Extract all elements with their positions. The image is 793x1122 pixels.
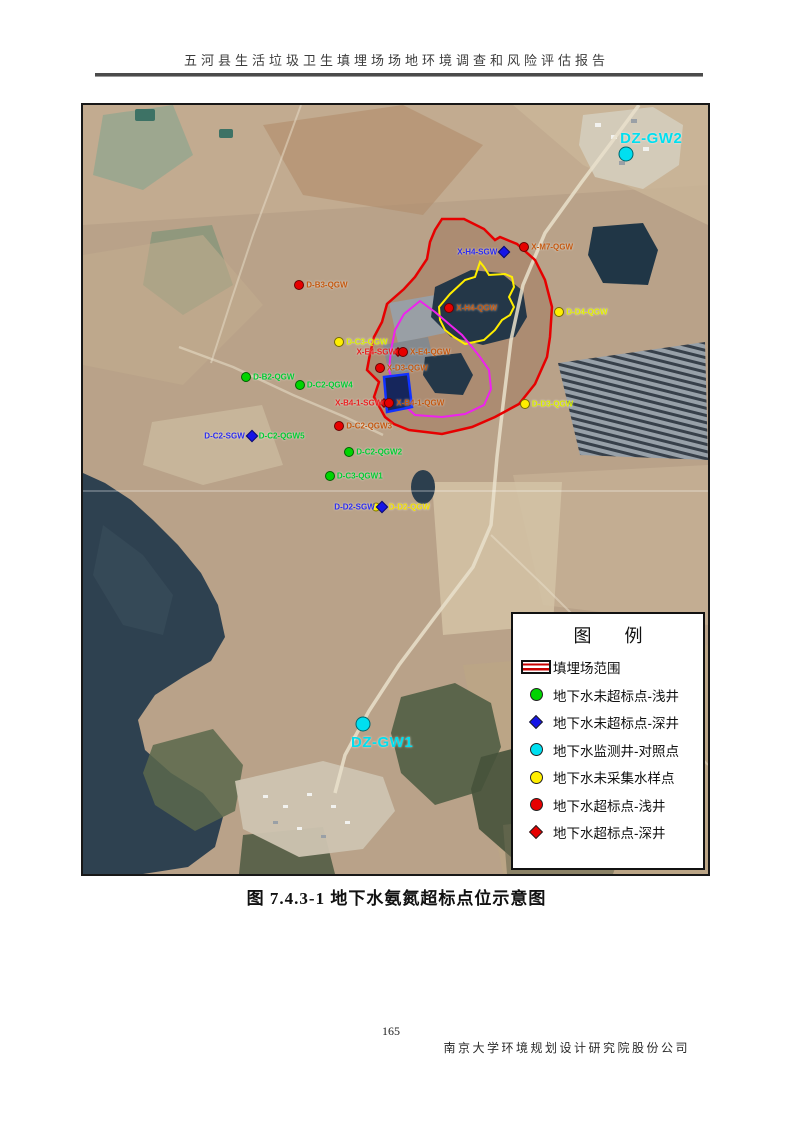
legend-label: 地下水超标点-浅井 [553, 795, 666, 815]
legend-symbol-circle-icon [519, 688, 553, 701]
circle-marker-icon [325, 471, 335, 481]
legend-symbol-landfill-icon [519, 660, 553, 674]
point-label: D-D3-QGW [532, 400, 573, 409]
legend-row: 地下水超标点-浅井 [513, 792, 703, 818]
circle-marker-icon [520, 399, 530, 409]
point-label: X-H4-QGW [456, 304, 497, 313]
point-label: X-E4-SGW [356, 347, 396, 356]
circle-marker-icon [519, 242, 529, 252]
point-label: X-M7-QGW [531, 243, 573, 252]
legend-label: 地下水超标点-深井 [553, 822, 666, 842]
legend-row: 填埋场范围 [513, 654, 703, 680]
circle-marker-icon [294, 280, 304, 290]
point-label: D-C3-QGW [346, 337, 387, 346]
page-number: 165 [382, 1024, 400, 1039]
footer-company: 南京大学环境规划设计研究院股份公司 [443, 1039, 690, 1056]
circle-marker-icon [295, 380, 305, 390]
point-label: X-E4-QGW [410, 347, 450, 356]
circle-marker-icon [334, 337, 344, 347]
legend-label: 地下水监测井-对照点 [553, 740, 679, 760]
legend-label: 地下水未超标点-浅井 [553, 685, 679, 705]
point-label: D-C2-QGW4 [307, 380, 353, 389]
legend-symbol-circle-icon [519, 798, 553, 811]
point-label: D-C2-QGW5 [259, 431, 305, 440]
diamond-marker-icon [498, 246, 511, 259]
point-label: D-D2-SGW [334, 503, 374, 512]
circle-marker-icon [334, 421, 344, 431]
circle-marker-icon [384, 398, 394, 408]
circle-marker-icon [344, 447, 354, 457]
circle-marker-icon [554, 307, 564, 317]
point-label: D-D2-QGW [389, 503, 430, 512]
point-label: DZ-GW1 [351, 734, 413, 751]
point-label: D-C2-SGW [204, 431, 244, 440]
point-label: X-D3-QGW [387, 363, 428, 372]
point-label: X-H4-SGW [457, 247, 497, 256]
circle-marker-icon [375, 363, 385, 373]
legend-row: 地下水监测井-对照点 [513, 737, 703, 763]
circle-marker-icon [619, 147, 634, 162]
figure-caption: 图 7.4.3-1 地下水氨氮超标点位示意图 [0, 884, 793, 909]
point-label: D-C2-QGW3 [346, 421, 392, 430]
point-label: D-B3-QGW [306, 280, 347, 289]
legend-row: 地下水未超标点-浅井 [513, 682, 703, 708]
legend-label: 填埋场范围 [553, 657, 621, 677]
legend-row: 地下水超标点-深井 [513, 819, 703, 845]
legend-symbol-diamond-icon [519, 717, 553, 727]
point-label: X-B4-1-QGW [396, 399, 444, 408]
point-label: D-B2-QGW [253, 373, 294, 382]
legend-row: 地下水未采集水样点 [513, 764, 703, 790]
legend-row: 地下水未超标点-深井 [513, 709, 703, 735]
circle-marker-icon [356, 717, 371, 732]
circle-marker-icon [444, 303, 454, 313]
legend-symbol-circle-icon [519, 743, 553, 756]
map-legend: 图 例 填埋场范围地下水未超标点-浅井地下水未超标点-深井地下水监测井-对照点地… [511, 612, 705, 870]
satellite-map-figure: DZ-GW2X-H4-SGWX-M7-QGWD-B3-QGWX-H4-QGWD-… [81, 103, 710, 876]
header-rule [95, 73, 703, 77]
report-page: 五河县生活垃圾卫生填埋场场地环境调查和风险评估报告 [0, 0, 793, 1122]
point-label: DZ-GW2 [620, 130, 682, 147]
point-label: D-D4-QGW [566, 307, 607, 316]
diamond-marker-icon [245, 429, 258, 442]
circle-marker-icon [241, 372, 251, 382]
legend-label: 地下水未采集水样点 [553, 767, 675, 787]
point-label: D-C2-QGW2 [356, 447, 402, 456]
circle-marker-icon [398, 347, 408, 357]
legend-symbol-diamond-icon [519, 827, 553, 837]
legend-title: 图 例 [513, 622, 703, 648]
point-label: X-B4-1-SGW [335, 399, 382, 408]
page-header-title: 五河县生活垃圾卫生填埋场场地环境调查和风险评估报告 [0, 50, 793, 69]
legend-label: 地下水未超标点-深井 [553, 712, 679, 732]
legend-symbol-circle-icon [519, 771, 553, 784]
legend-rows: 填埋场范围地下水未超标点-浅井地下水未超标点-深井地下水监测井-对照点地下水未采… [513, 654, 703, 845]
point-label: D-C3-QGW1 [337, 471, 383, 480]
